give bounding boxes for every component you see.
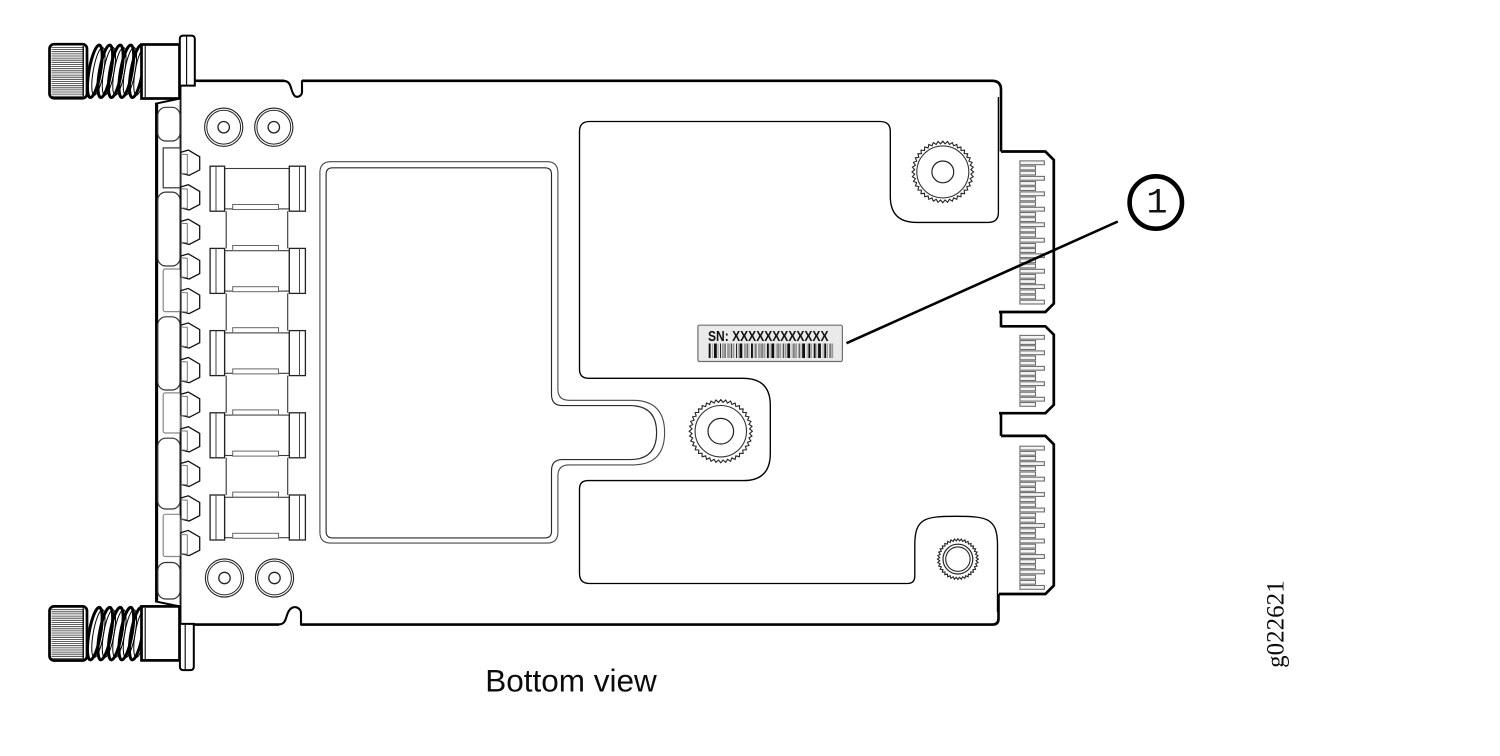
svg-text:g022621: g022621: [1262, 580, 1289, 668]
svg-text:SN: XXXXXXXXXXXX: SN: XXXXXXXXXXXX: [708, 329, 829, 345]
svg-text:Bottom view: Bottom view: [485, 663, 657, 699]
svg-text:1: 1: [1146, 183, 1167, 223]
